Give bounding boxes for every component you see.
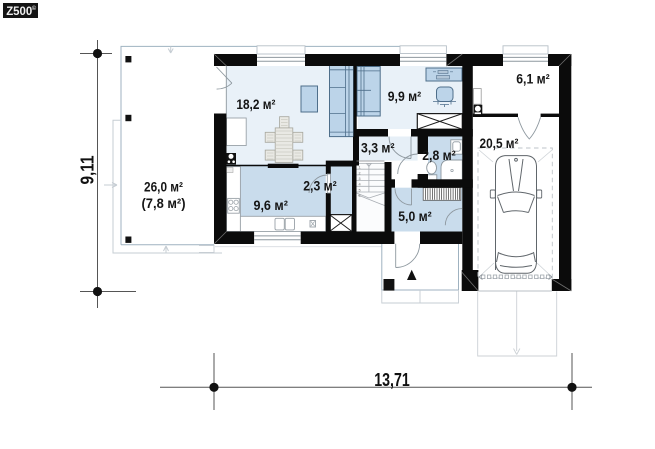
svg-text:9,6 м²: 9,6 м² — [253, 197, 288, 213]
svg-text:9,11: 9,11 — [78, 156, 98, 185]
svg-text:2,3 м²: 2,3 м² — [303, 178, 337, 194]
svg-text:2: 2 — [358, 171, 360, 175]
svg-text:18,2 м²: 18,2 м² — [236, 96, 275, 112]
svg-text:26,0 м²: 26,0 м² — [144, 179, 183, 195]
svg-text:3,3 м²: 3,3 м² — [361, 140, 395, 156]
svg-text:1: 1 — [358, 166, 360, 170]
svg-text:5,0 м²: 5,0 м² — [398, 208, 432, 224]
svg-text:5: 5 — [358, 188, 360, 192]
svg-text:©: © — [32, 5, 37, 12]
svg-text:6: 6 — [358, 194, 360, 198]
svg-text:2,8 м²: 2,8 м² — [422, 147, 456, 163]
svg-text:(7,8 м²): (7,8 м²) — [142, 195, 186, 211]
svg-text:3: 3 — [358, 177, 360, 181]
svg-text:9,9 м²: 9,9 м² — [388, 88, 422, 104]
svg-text:13,71: 13,71 — [374, 370, 410, 390]
svg-text:20,5 м²: 20,5 м² — [480, 135, 519, 151]
svg-text:6,1 м²: 6,1 м² — [516, 71, 550, 87]
svg-text:Z500: Z500 — [6, 4, 32, 18]
